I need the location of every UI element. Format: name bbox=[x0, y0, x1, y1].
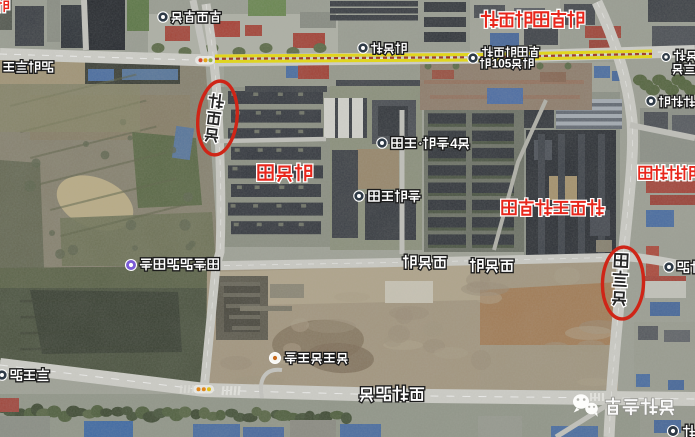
svg-text:5: 5 bbox=[505, 58, 512, 71]
svg-text:4: 4 bbox=[450, 136, 458, 151]
